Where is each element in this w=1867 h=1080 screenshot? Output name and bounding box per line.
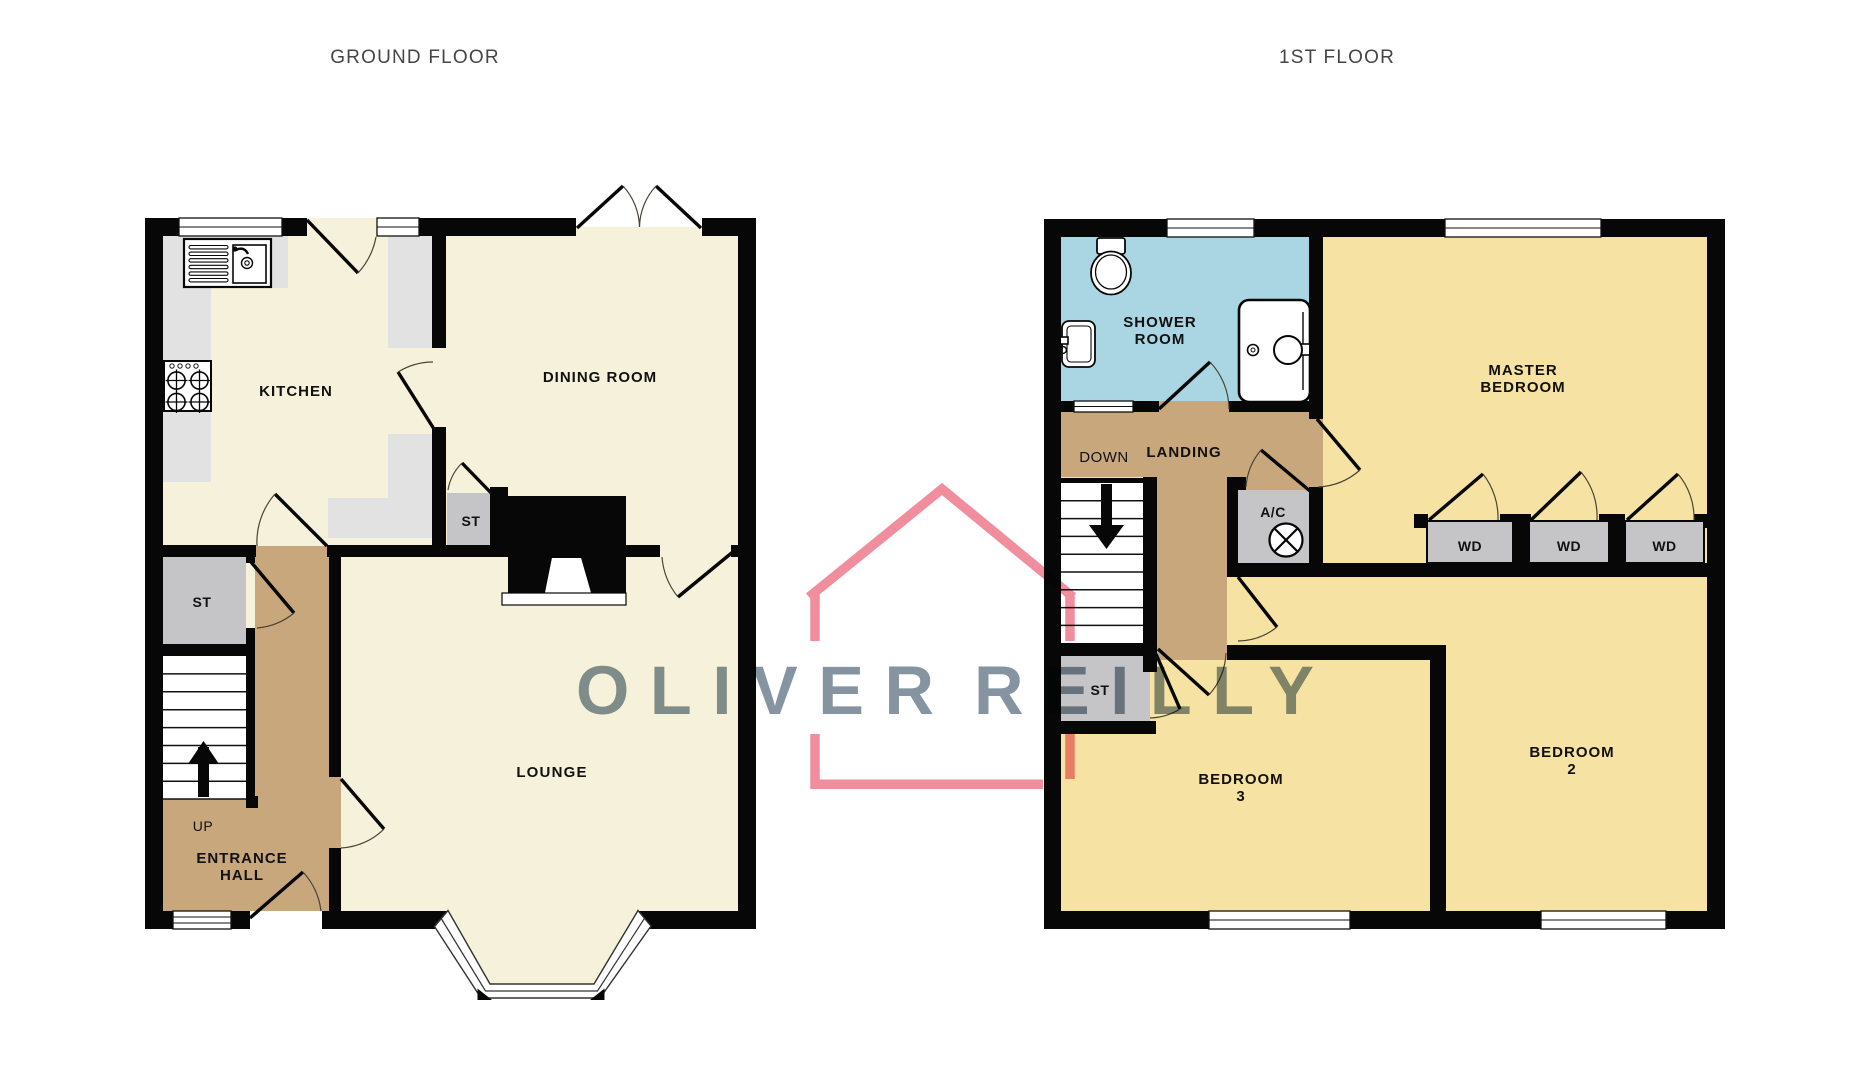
- svg-text:DOWN: DOWN: [1079, 449, 1129, 466]
- svg-text:WD: WD: [1557, 538, 1581, 554]
- svg-text:ST: ST: [462, 513, 481, 529]
- svg-text:LANDING: LANDING: [1146, 444, 1221, 461]
- svg-text:ST: ST: [1091, 682, 1110, 698]
- svg-text:1ST FLOOR: 1ST FLOOR: [1279, 47, 1395, 68]
- svg-text:DINING ROOM: DINING ROOM: [543, 369, 657, 386]
- svg-text:ROOM: ROOM: [1135, 331, 1186, 348]
- svg-text:A/C: A/C: [1260, 504, 1286, 520]
- svg-text:3: 3: [1236, 788, 1245, 805]
- svg-text:GROUND FLOOR: GROUND FLOOR: [330, 47, 500, 68]
- svg-text:KITCHEN: KITCHEN: [259, 383, 333, 400]
- svg-text:SHOWER: SHOWER: [1123, 314, 1197, 331]
- svg-text:BEDROOM: BEDROOM: [1198, 771, 1283, 788]
- svg-text:WD: WD: [1458, 538, 1482, 554]
- svg-text:ENTRANCE: ENTRANCE: [196, 850, 287, 867]
- svg-text:2: 2: [1567, 761, 1576, 778]
- svg-text:LOUNGE: LOUNGE: [516, 764, 587, 781]
- svg-text:BEDROOM: BEDROOM: [1529, 744, 1614, 761]
- svg-text:BEDROOM: BEDROOM: [1480, 379, 1565, 396]
- svg-text:WD: WD: [1652, 538, 1676, 554]
- svg-text:UP: UP: [193, 818, 213, 834]
- svg-text:MASTER: MASTER: [1488, 362, 1557, 379]
- svg-text:HALL: HALL: [220, 867, 264, 884]
- svg-text:ST: ST: [193, 594, 212, 610]
